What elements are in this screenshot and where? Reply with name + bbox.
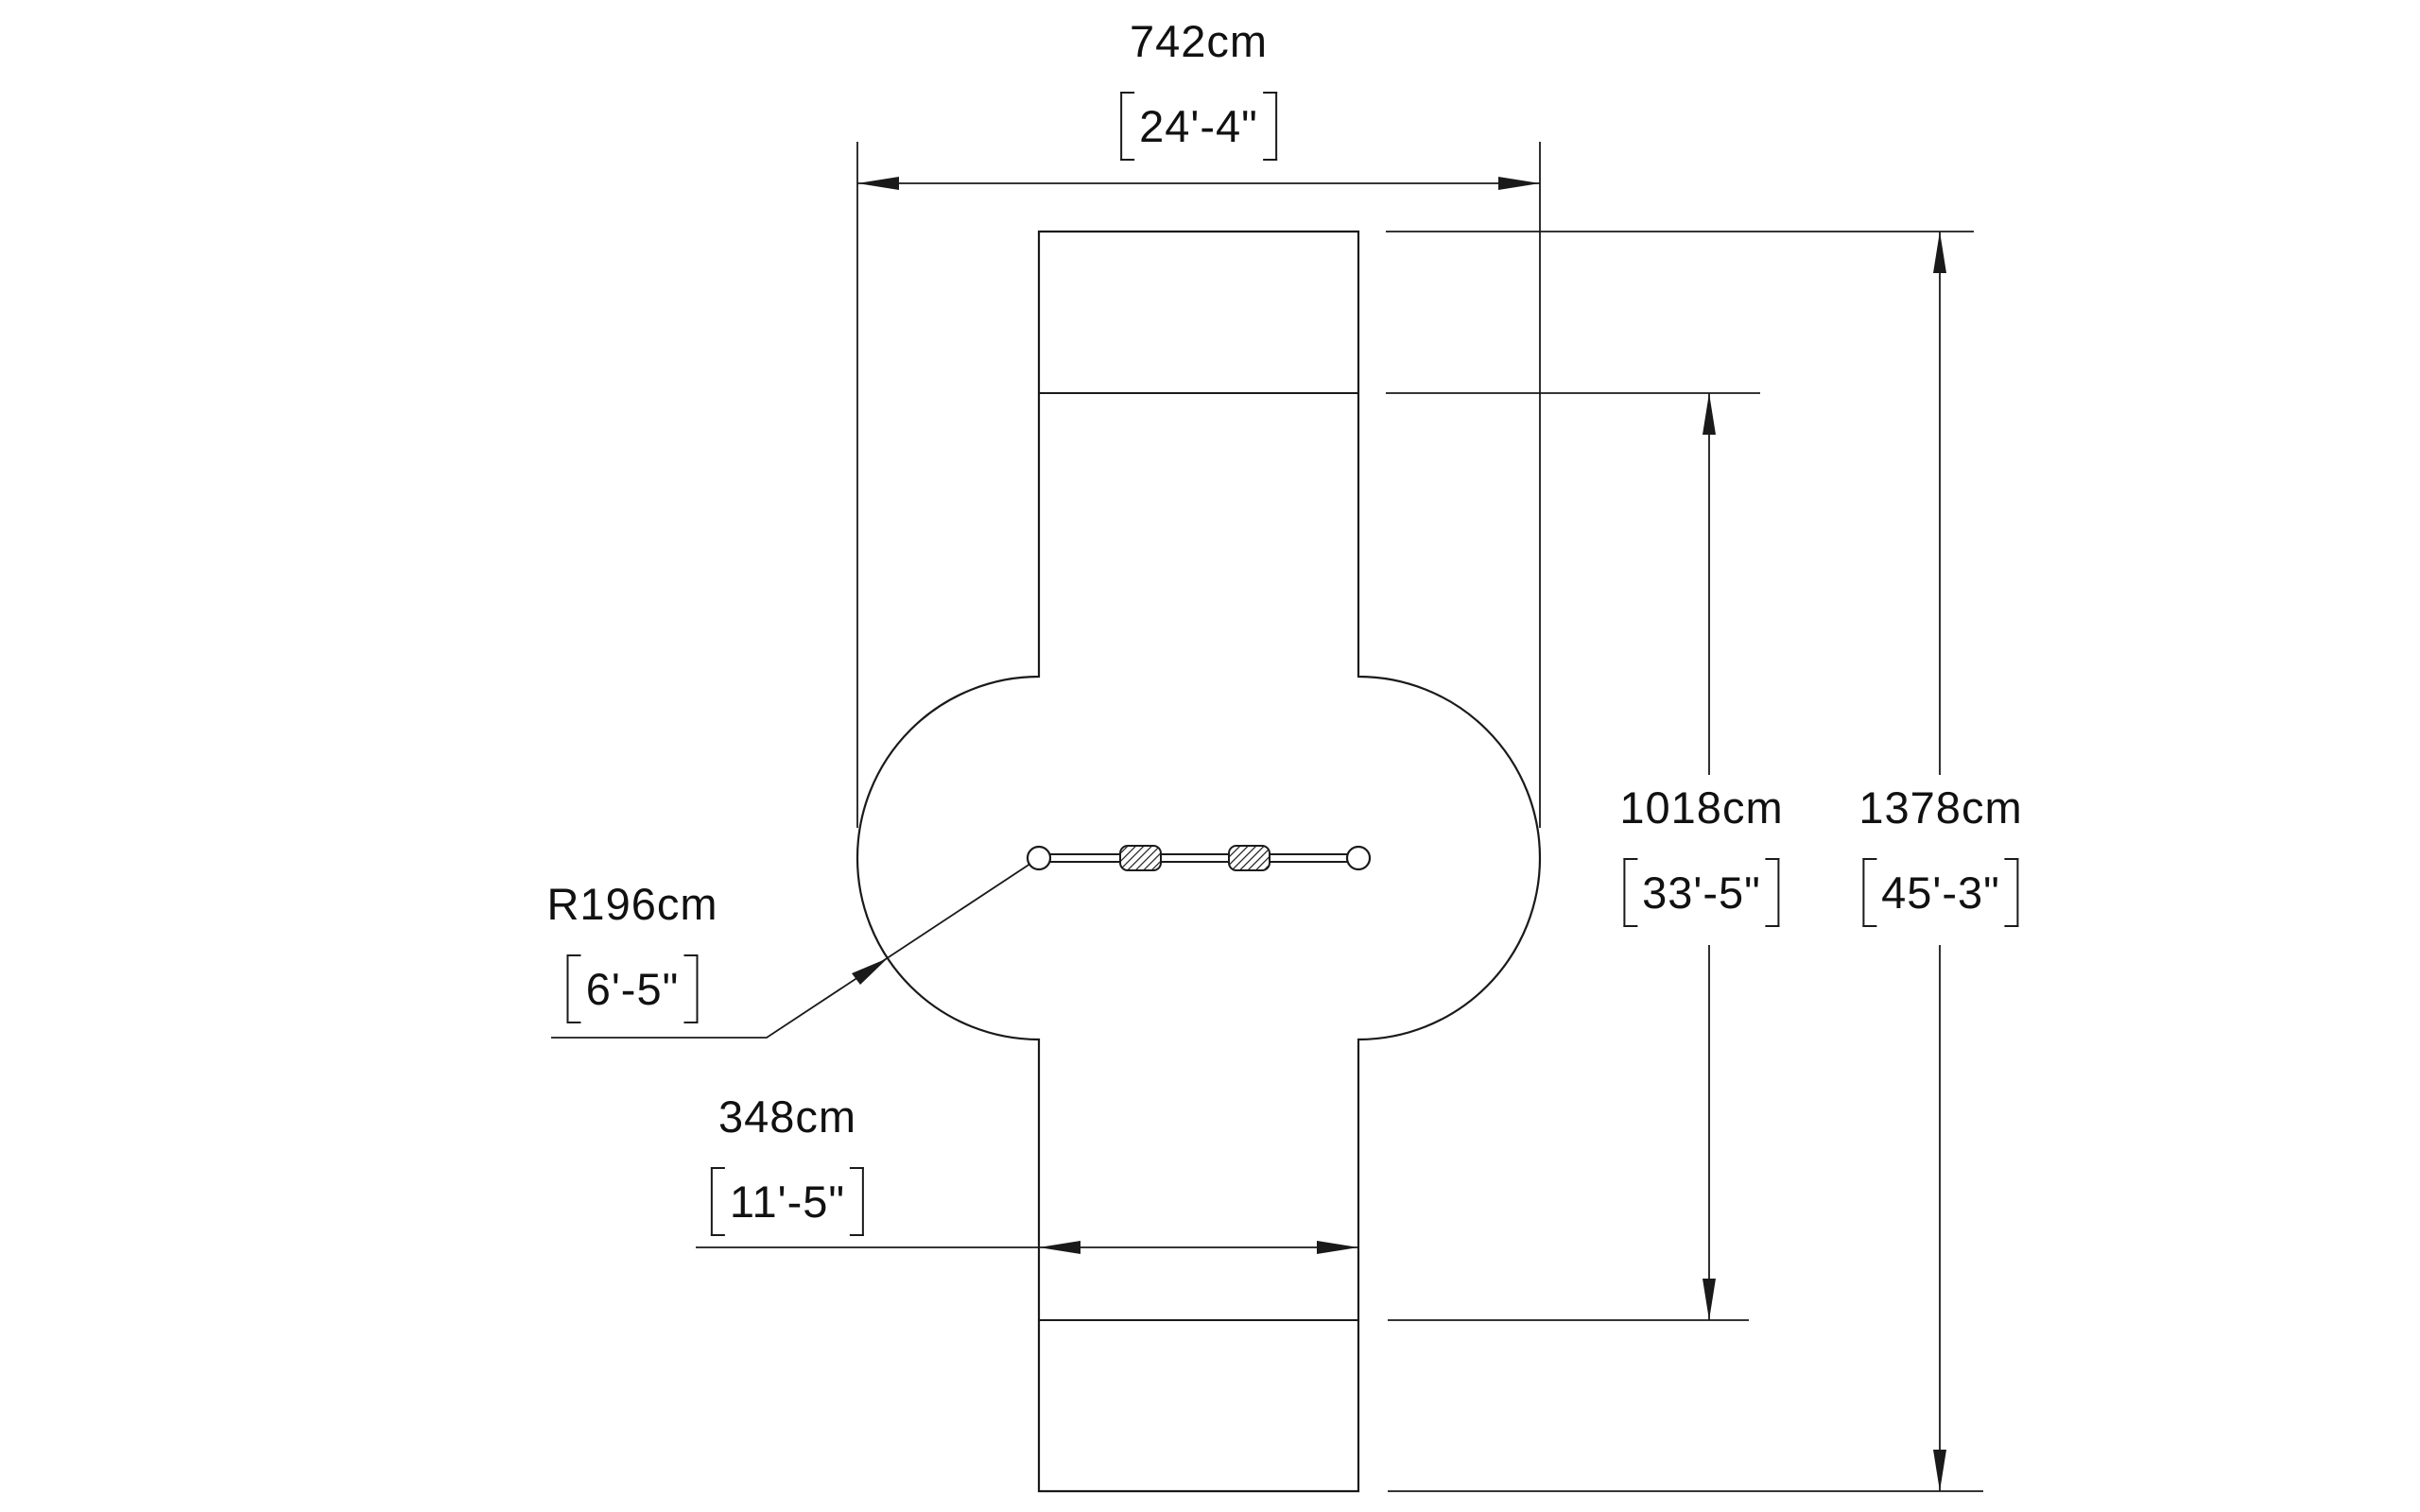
imperial-value: 6'-5" bbox=[586, 964, 680, 1014]
imperial-value-bracketed: 24'-4" bbox=[1120, 92, 1277, 161]
dimension-label-overall-height: 1378cm 45'-3" bbox=[1858, 785, 2022, 927]
metric-value: 348cm bbox=[718, 1094, 856, 1139]
metric-value: 1018cm bbox=[1619, 785, 1783, 830]
metric-value: 742cm bbox=[1130, 19, 1268, 63]
imperial-value-bracketed: 11'-5" bbox=[711, 1167, 864, 1236]
drawing-canvas: 742cm 24'-4" 1018cm 33'-5" 1378cm 45'-3"… bbox=[0, 0, 2420, 1512]
imperial-value: 45'-3" bbox=[1881, 868, 2000, 918]
bay-width-arrow-right bbox=[1317, 1241, 1358, 1254]
dimension-label-bay-width: 348cm 11'-5" bbox=[711, 1094, 864, 1236]
overall-height-arrow-bottom bbox=[1933, 1450, 1946, 1491]
imperial-value-bracketed: 45'-3" bbox=[1862, 858, 2019, 927]
overall-height-arrow-top bbox=[1933, 232, 1946, 273]
swing-hanger-left bbox=[1120, 846, 1161, 870]
bay-width-arrow-left bbox=[1039, 1241, 1080, 1254]
imperial-value-bracketed: 6'-5" bbox=[567, 954, 699, 1023]
radius-leader-arrowhead bbox=[852, 958, 888, 985]
dimension-label-overall-width: 742cm 24'-4" bbox=[1120, 19, 1277, 161]
swing-post-right bbox=[1347, 847, 1370, 869]
width-arrow-right bbox=[1498, 177, 1540, 190]
width-arrow-left bbox=[857, 177, 899, 190]
plan-view-drawing bbox=[0, 0, 2420, 1512]
imperial-value-bracketed: 33'-5" bbox=[1623, 858, 1780, 927]
inner-height-arrow-top bbox=[1703, 393, 1716, 435]
dimension-label-inner-height: 1018cm 33'-5" bbox=[1619, 785, 1783, 927]
metric-value: R196cm bbox=[546, 882, 717, 926]
imperial-value: 24'-4" bbox=[1139, 101, 1258, 151]
metric-value: 1378cm bbox=[1858, 785, 2022, 830]
inner-height-arrow-bottom bbox=[1703, 1279, 1716, 1320]
imperial-value: 11'-5" bbox=[730, 1177, 845, 1227]
imperial-value: 33'-5" bbox=[1642, 868, 1761, 918]
swing-hanger-right bbox=[1229, 846, 1270, 870]
dimension-label-swing-radius: R196cm 6'-5" bbox=[546, 882, 717, 1023]
swing-post-left bbox=[1028, 847, 1050, 869]
